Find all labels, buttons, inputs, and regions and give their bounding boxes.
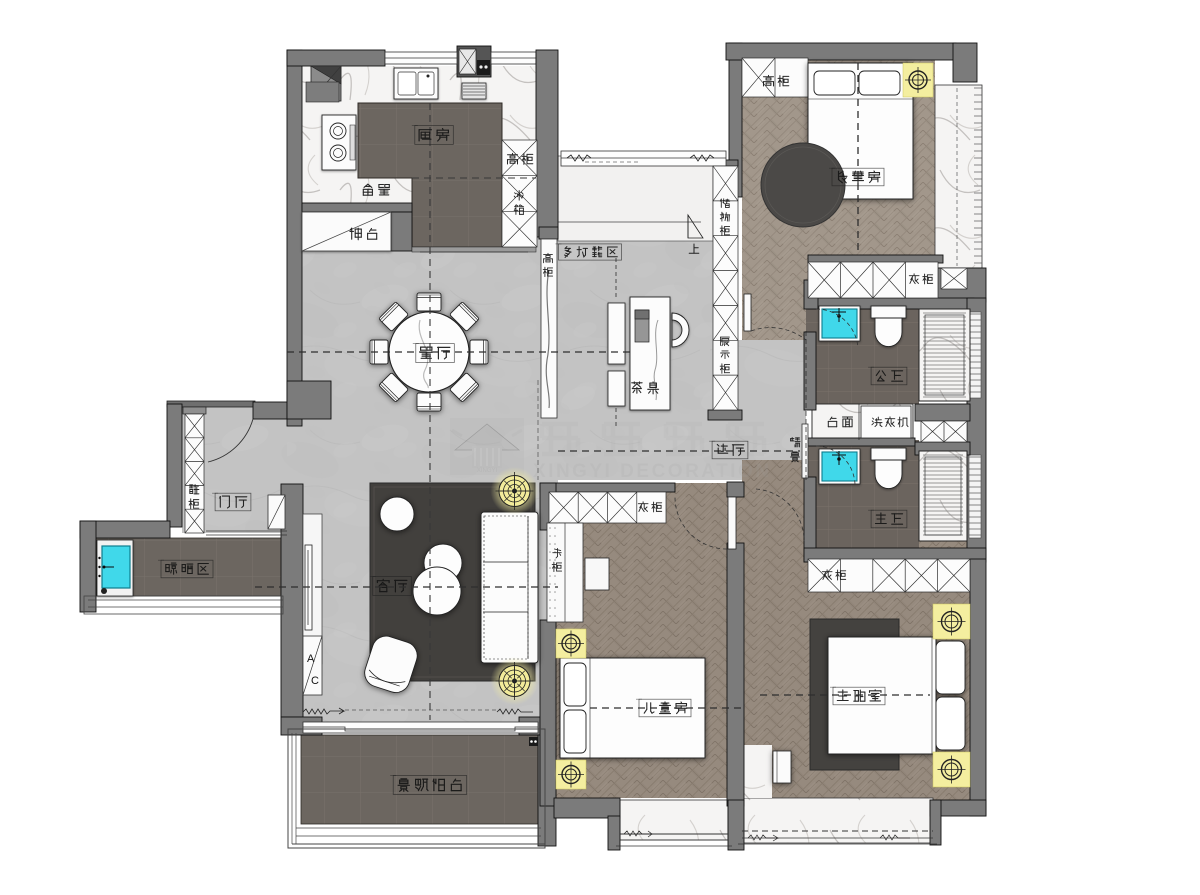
svg-text:XINGYI DECORATION: XINGYI DECORATION	[533, 461, 772, 482]
svg-text:C: C	[311, 675, 319, 687]
svg-text:A: A	[307, 653, 315, 665]
svg-text:XINGYI: XINGYI	[477, 468, 498, 474]
